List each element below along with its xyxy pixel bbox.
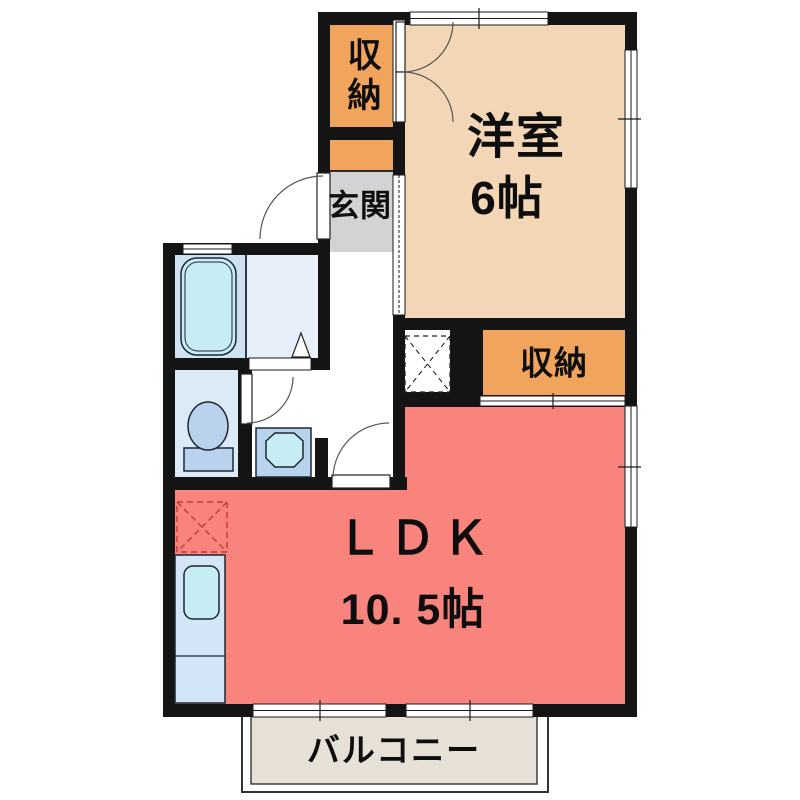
ldk-label: ＬＤＫ — [337, 513, 496, 565]
toilet-door — [241, 374, 293, 424]
kitchen-counter — [175, 555, 225, 703]
ldk-size: 10. 5帖 — [341, 586, 486, 634]
wall — [393, 318, 637, 330]
floor-plan-drawing — [0, 0, 800, 800]
bathtub-icon — [181, 258, 236, 355]
washbasin-icon — [256, 428, 311, 477]
washroom-floor — [247, 255, 318, 358]
closet-upper-label: 収納 — [342, 37, 380, 117]
western-room-sliding-door — [393, 175, 405, 315]
wall — [318, 243, 330, 370]
kitchen-sink-icon — [184, 566, 219, 619]
wall — [315, 438, 328, 480]
entrance-label: 玄関 — [328, 190, 392, 225]
balcony-label: バルコニー — [307, 733, 481, 770]
wall — [393, 392, 480, 407]
washing-machine-space-dashed-box — [405, 336, 450, 392]
wall — [330, 127, 393, 140]
bath-washroom-divider — [245, 255, 247, 358]
entrance-door — [260, 173, 330, 239]
ldk-door — [332, 423, 390, 488]
shoe-cabinet — [330, 140, 393, 170]
wall — [450, 330, 483, 397]
window-bathroom — [183, 244, 232, 254]
western-room-size: 6帖 — [470, 173, 544, 225]
floor-plan: 収納 玄関 洋室 6帖 収納 ＬＤＫ 10. 5帖 バルコニー — [0, 0, 800, 800]
wall — [163, 704, 637, 717]
closet-ldk-label: 収納 — [520, 346, 588, 383]
western-room-label: 洋室 — [467, 111, 565, 165]
